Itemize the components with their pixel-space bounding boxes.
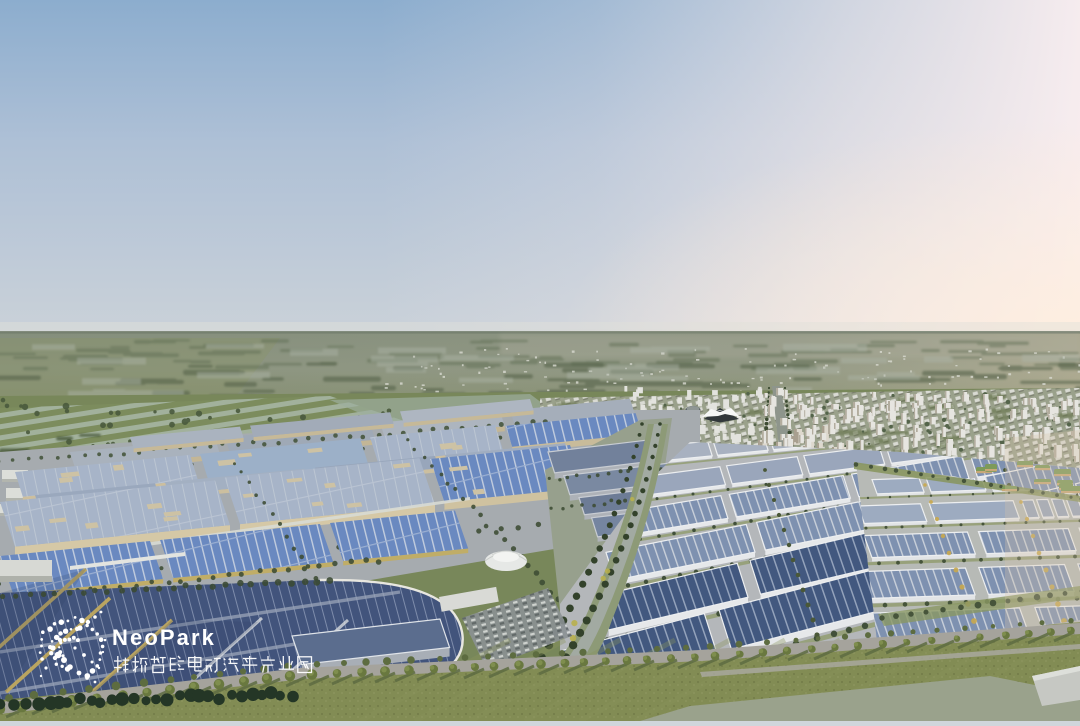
svg-text:NeoPark: NeoPark: [112, 625, 216, 650]
